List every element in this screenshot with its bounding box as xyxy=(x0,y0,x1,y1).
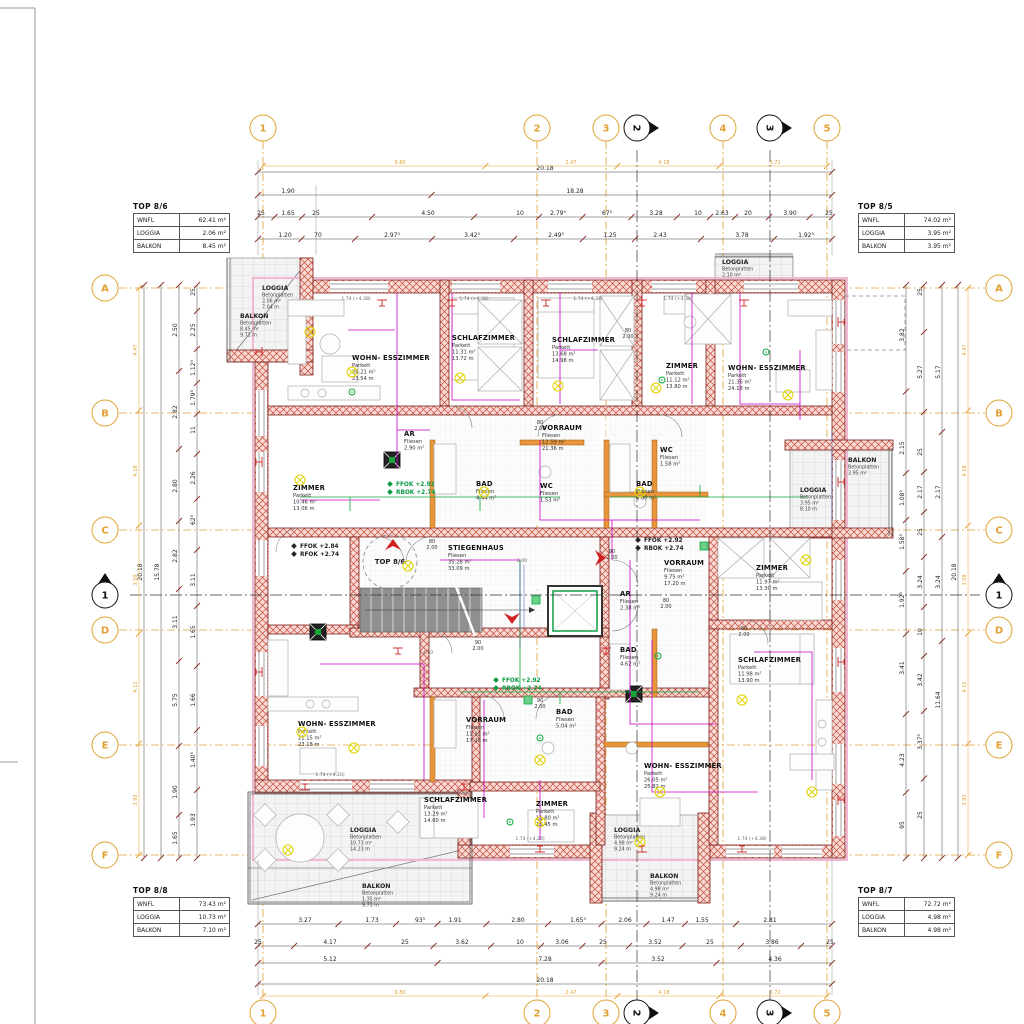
apartment-entry-label: TOP 8/6 xyxy=(375,558,406,566)
dimension-label: 11.64 xyxy=(935,691,942,708)
dimension-label: 25 xyxy=(599,939,607,946)
room-label: WOHN- ESSZIMMER xyxy=(728,364,806,372)
dimension-label: 1.47 xyxy=(661,917,675,924)
dimension-label: 3.58 xyxy=(133,574,139,585)
loggia-label: BALKON xyxy=(848,457,876,464)
axis-bubble-label: B xyxy=(995,409,1003,420)
loggia-sublabel: 9.24 m xyxy=(614,847,631,853)
table-key: WNFL xyxy=(134,214,180,227)
axis-bubble-label: F xyxy=(102,851,109,862)
dimension-label: 20.18 xyxy=(536,977,553,984)
loggia-sublabel: 2.06 m² xyxy=(262,299,281,305)
dimension-label: 4.23 xyxy=(899,753,906,767)
table-key: BALKON xyxy=(859,924,905,937)
furniture-round xyxy=(818,720,826,728)
room-sublabel: 21.36 m xyxy=(542,446,564,452)
loggia-sublabel: Betonplatten xyxy=(350,835,381,841)
dimension-label: 25 xyxy=(401,939,409,946)
dimension-label: 1.58⁵ xyxy=(899,534,906,550)
window xyxy=(256,540,267,576)
dimension-label: 4.11 xyxy=(962,681,968,692)
dimension-label: 2.80 xyxy=(172,479,179,493)
room-sublabel: 11.98 m² xyxy=(738,672,762,678)
dimension-label: 10 xyxy=(516,210,524,217)
window xyxy=(330,281,388,292)
room-sublabel: 14.98 m xyxy=(552,358,574,364)
axis-bubble-label: 1 xyxy=(260,124,267,135)
balkon-bottom-left xyxy=(248,868,472,904)
shaft-vent xyxy=(315,629,321,635)
dimension-label: 25 xyxy=(917,528,924,536)
loggia-sublabel: 4.98 m² xyxy=(650,887,669,893)
room-sublabel: 35.28 m² xyxy=(448,560,472,566)
table-value: 8.45 m² xyxy=(179,240,229,253)
dimension-label: 2.06 xyxy=(618,917,632,924)
room-sublabel: Parkett xyxy=(666,371,684,377)
loggia-sublabel: 8.10 m xyxy=(800,507,817,513)
loggia-sublabel: Betonplatten xyxy=(650,881,681,887)
area-table-bottom-left: TOP 8/8 WNFL73.43 m² LOGGIA10.73 m² BALK… xyxy=(133,886,230,937)
dimension-label: 25 xyxy=(917,811,924,819)
room-sublabel: Fliesen xyxy=(466,725,484,731)
dimension-label: 4.18 xyxy=(133,465,139,476)
dimension-label: 25 xyxy=(917,448,924,456)
level-annotation: FFOK +2.92 xyxy=(396,482,435,488)
dimension-label: 9.80 xyxy=(394,160,405,166)
room-label: SCHLAFZIMMER xyxy=(552,336,616,344)
dimension-label: 70 xyxy=(314,232,322,239)
window xyxy=(726,846,774,857)
furniture-round xyxy=(322,700,330,708)
room-label: SCHLAFZIMMER xyxy=(452,334,516,342)
area-table-title: TOP 8/6 xyxy=(133,202,230,211)
axis-bubble-label: C xyxy=(101,526,108,537)
window xyxy=(833,352,844,392)
room-sublabel: 13.68 m² xyxy=(552,352,576,358)
dimension-label: 1.65⁵ xyxy=(570,917,586,924)
room-sublabel: 1.53 m² xyxy=(540,498,560,504)
dimension-label: 25 xyxy=(917,288,924,296)
door-size-tag: 2.00 xyxy=(660,604,671,610)
room-label: BAD xyxy=(620,646,637,654)
axis-bubble-label: 5 xyxy=(824,1009,831,1020)
furniture xyxy=(788,300,832,316)
dimension-label: 5.12 xyxy=(323,956,337,963)
dimension-label: 1.92⁵ xyxy=(798,232,814,239)
room-label: SCHLAFZIMMER xyxy=(738,656,802,664)
dimension-label: 4.17 xyxy=(323,939,337,946)
furniture-round xyxy=(684,316,696,328)
outlet-symbol xyxy=(657,655,659,657)
dimension-label: 3.42 xyxy=(917,673,924,687)
axis-bubble-label: E xyxy=(996,741,1003,752)
area-table-top-left: TOP 8/6 WNFL62.41 m² LOGGIA2.06 m² BALKO… xyxy=(133,202,230,253)
room-sublabel: 11.80 m² xyxy=(536,816,560,822)
furniture-round xyxy=(542,742,554,754)
room-sublabel: 21.15 m² xyxy=(298,736,322,742)
window xyxy=(452,281,500,292)
room-sublabel: Parkett xyxy=(452,343,470,349)
room-sublabel: Parkett xyxy=(644,771,662,777)
dimension-label: 2.80 xyxy=(511,917,525,924)
axis-bubble-label: D xyxy=(995,626,1003,637)
dimension-label: 1.55 xyxy=(695,917,709,924)
dimension-label: 1.12⁵ xyxy=(190,360,197,376)
loggia-sublabel: Betonplatten xyxy=(262,293,293,299)
window-size-tag: 2.00 xyxy=(517,558,527,564)
sheet-frame xyxy=(0,8,35,1024)
room-sublabel: 4.62 m² xyxy=(620,662,640,668)
room-sublabel: 13.80 m xyxy=(666,384,688,390)
dimension-label: 11 xyxy=(190,426,197,434)
table-value: 62.41 m² xyxy=(179,214,229,227)
room-label: WC xyxy=(660,446,673,454)
furniture xyxy=(300,748,336,774)
table-key: WNFL xyxy=(859,898,905,911)
dimension-label: 2.81 xyxy=(763,917,777,924)
window-size-tag: 4.50 xyxy=(423,650,433,656)
axis-bubble-label: B xyxy=(101,409,109,420)
room-sublabel: 26.05 m² xyxy=(644,778,668,784)
room-sublabel: Fliesen xyxy=(542,433,560,439)
room-label: ZIMMER xyxy=(666,362,699,370)
furniture-round xyxy=(318,389,326,397)
dimension-label: 3.72 xyxy=(769,160,780,166)
dimension-label: 4.18 xyxy=(658,160,669,166)
dimension-label: 1.93 xyxy=(190,813,197,827)
dimension-label: 2.49⁵ xyxy=(548,232,564,239)
dimension-label: 5.27 xyxy=(917,365,924,379)
level-annotation: FFOK +2.92 xyxy=(644,538,683,544)
room-sublabel: 10.46 m² xyxy=(293,500,317,506)
level-marker-icon xyxy=(493,677,499,683)
furniture xyxy=(288,300,344,316)
dimension-label: 4.36 xyxy=(768,956,782,963)
table-key: WNFL xyxy=(859,214,905,227)
dimension-label: 67⁵ xyxy=(602,210,613,217)
furniture xyxy=(268,640,288,696)
outlet-symbol xyxy=(661,379,663,381)
room-sublabel: Parkett xyxy=(536,809,554,815)
level-marker-icon xyxy=(291,543,297,549)
window xyxy=(833,744,844,784)
dimension-label: 3.41 xyxy=(899,661,906,675)
dimension-label: 5.17 xyxy=(935,365,942,379)
axis-bubble-label: 4 xyxy=(720,1009,727,1020)
dimension-label: 1.20 xyxy=(278,232,292,239)
roof-outline-dashed xyxy=(845,296,905,350)
dimension-label: 1.90 xyxy=(172,785,179,799)
axis-bubble-label: C xyxy=(995,526,1002,537)
door-size-tag: 2.00 xyxy=(534,704,545,710)
window xyxy=(256,452,267,492)
loggia-sublabel: 4.98 m² xyxy=(614,841,633,847)
furniture xyxy=(434,700,456,748)
loggia-sublabel: 7.04 m xyxy=(262,305,279,311)
table-value: 7.10 m² xyxy=(179,924,229,937)
room-label: ZIMMER xyxy=(293,484,326,492)
table-value: 73.43 m² xyxy=(179,898,229,911)
dimension-label: 10 xyxy=(694,210,702,217)
furniture-round xyxy=(306,700,314,708)
dimension-label: 3.24 xyxy=(935,575,942,589)
room-sublabel: Fliesen xyxy=(540,491,558,497)
furniture-round xyxy=(539,466,551,478)
section-marker-label: 2 xyxy=(631,125,642,132)
loggia-label: LOGGIA xyxy=(262,285,288,292)
window xyxy=(652,281,696,292)
window xyxy=(256,390,267,436)
level-marker-icon xyxy=(387,481,393,487)
section-marker-label: 2 xyxy=(631,1010,642,1017)
table-value: 4.98 m² xyxy=(904,924,954,937)
window-size-tag: 1.74 (+4.38) xyxy=(663,296,693,302)
dimension-label: 7.28 xyxy=(538,956,552,963)
room-sublabel: Parkett xyxy=(728,373,746,379)
dimension-label: 15.78 xyxy=(154,563,161,580)
axis-bubble-label: 3 xyxy=(603,1009,610,1020)
dimension-label: 3.82 xyxy=(899,328,906,342)
table-value: 10.73 m² xyxy=(179,911,229,924)
dimension-label: 1.79⁵ xyxy=(190,390,197,406)
dimension-label: 3.37⁵ xyxy=(917,734,924,750)
dimension-label: 1.65 xyxy=(172,831,179,845)
loggia-sublabel: Betonplatten xyxy=(848,465,879,471)
furniture xyxy=(776,370,810,392)
dimension-label: 3.58 xyxy=(962,574,968,585)
axis-bubble-label: 3 xyxy=(603,124,610,135)
room-sublabel: 11.31 m² xyxy=(452,350,476,356)
level-annotation: FFOK +2.92 xyxy=(502,678,541,684)
room-sublabel: Parkett xyxy=(756,573,774,579)
table-key: BALKON xyxy=(134,924,180,937)
room-sublabel: Parkett xyxy=(738,665,756,671)
table-value: 3.95 m² xyxy=(904,240,954,253)
radiator-valve-symbol xyxy=(739,300,749,306)
room-label: AR xyxy=(404,430,415,438)
dimension-label: 1.90 xyxy=(281,188,295,195)
window xyxy=(256,652,267,696)
table-key: LOGGIA xyxy=(859,911,905,924)
loggia-sublabel: 8.45 m² xyxy=(240,327,259,333)
outlet-symbol xyxy=(539,737,541,739)
room-sublabel: 23.18 m xyxy=(298,742,320,748)
table-value: 4.98 m² xyxy=(904,911,954,924)
room-sublabel: Fliesen xyxy=(404,439,422,445)
area-table-title: TOP 8/5 xyxy=(858,202,955,211)
dimension-label: 1.92⁵ xyxy=(899,592,906,608)
room-sublabel: 2.90 m² xyxy=(404,446,424,452)
furniture xyxy=(434,444,456,494)
dimension-label: 3.90 xyxy=(783,210,797,217)
table-key: BALKON xyxy=(859,240,905,253)
loggia-sublabel: 3.95 m² xyxy=(848,471,867,477)
window-size-tag: 1.74 (+4.20) xyxy=(315,772,345,778)
room-sublabel: 11.12 m² xyxy=(666,378,690,384)
loggia-label: BALKON xyxy=(362,883,390,890)
area-table-bottom-right: TOP 8/7 WNFL72.72 m² LOGGIA4.98 m² BALKO… xyxy=(858,886,955,937)
loggia-sublabel: Betonplatten xyxy=(800,495,831,501)
room-sublabel: Fliesen xyxy=(556,717,574,723)
room-label: WOHN- ESSZIMMER xyxy=(644,762,722,770)
room-sublabel: Fliesen xyxy=(620,655,638,661)
dimension-label: 3.86 xyxy=(765,939,779,946)
dimension-label: 2.25 xyxy=(190,323,197,337)
dimension-label: 2.15 xyxy=(899,441,906,455)
level-annotation: RFOK +2.74 xyxy=(300,552,339,558)
dimension-label: 3.42⁵ xyxy=(464,232,480,239)
room-sublabel: 23.54 m xyxy=(352,376,374,382)
dimension-label: 1.66 xyxy=(190,693,197,707)
table-value: 3.95 m² xyxy=(904,227,954,240)
dimension-label: 2.43 xyxy=(653,232,667,239)
furniture xyxy=(770,582,822,620)
dimension-label: 2.82 xyxy=(172,549,179,563)
area-table-title: TOP 8/7 xyxy=(858,886,955,895)
room-sublabel: Fliesen xyxy=(620,599,638,605)
table-key: LOGGIA xyxy=(859,227,905,240)
furniture-round xyxy=(276,814,324,862)
furniture xyxy=(610,444,630,492)
dimension-label: 25 xyxy=(257,210,265,217)
dimension-label: 62⁵ xyxy=(190,514,197,525)
room-sublabel: 14.60 m xyxy=(424,818,446,824)
dimension-label: 25 xyxy=(826,939,834,946)
loggia-label: BALKON xyxy=(240,313,268,320)
axis-bubble-label: E xyxy=(102,741,109,752)
dimension-label: 10 xyxy=(917,628,924,636)
floor-plan-canvas: 20.181.9018.28251.65254.50102.79⁵67⁵3.28… xyxy=(0,0,1024,1024)
dimension-label: 3.78 xyxy=(735,232,749,239)
table-value: 2.06 m² xyxy=(179,227,229,240)
loggia-label: LOGGIA xyxy=(350,827,376,834)
axis-bubble-label: F xyxy=(996,851,1003,862)
furniture xyxy=(640,798,680,826)
window xyxy=(833,648,844,692)
room-label: VORRAUM xyxy=(664,559,704,567)
room-label: WC xyxy=(540,482,553,490)
level-annotation: RBOK +2.74 xyxy=(396,490,435,496)
dimension-label: 3.52 xyxy=(648,939,662,946)
dimension-label: 3.11 xyxy=(190,573,197,587)
room-sublabel: 33.09 m xyxy=(448,566,470,572)
axis-bubble-label: D xyxy=(101,626,109,637)
dimension-label: 3.06 xyxy=(555,939,569,946)
dimension-label: 10 xyxy=(516,939,524,946)
window xyxy=(833,560,844,600)
room-sublabel: 24.18 m xyxy=(728,386,750,392)
shaft-vent xyxy=(389,457,395,463)
window-size-tag: 1.74 (+4.38) xyxy=(573,296,603,302)
dimension-label: 3.27 xyxy=(298,917,312,924)
room-label: SCHLAFZIMMER xyxy=(424,796,488,804)
furniture-round xyxy=(301,389,309,397)
outlet-symbol xyxy=(765,351,767,353)
dimension-label: 1.91 xyxy=(448,917,462,924)
room-label: ZIMMER xyxy=(536,800,569,808)
room-sublabel: 13.29 m² xyxy=(424,812,448,818)
loggia-sublabel: 3.95 m² xyxy=(800,501,819,507)
axis-bubble-label: 1 xyxy=(260,1009,267,1020)
dimension-label: 3.11 xyxy=(172,615,179,629)
window xyxy=(782,846,822,857)
section-marker-label: 1 xyxy=(102,591,109,602)
dimension-label: 18.28 xyxy=(566,188,583,195)
dimension-label: 2.26 xyxy=(190,471,197,485)
window xyxy=(833,460,844,520)
dimension-label: 4.47 xyxy=(962,344,968,355)
window xyxy=(370,781,414,792)
room-sublabel: 21.36 m² xyxy=(728,380,752,386)
window-size-tag: 1.74 (+4.20) xyxy=(515,836,545,842)
outlet-symbol xyxy=(509,821,511,823)
loggia-sublabel: Betonplatten xyxy=(362,891,393,897)
loggia-label: BALKON xyxy=(650,873,678,880)
loggia-sublabel: 10.73 m² xyxy=(350,841,372,847)
dimension-label: 93⁵ xyxy=(415,917,426,924)
loggia-label: LOGGIA xyxy=(800,487,826,494)
room-label: WOHN- ESSZIMMER xyxy=(352,354,430,362)
dimension-label: 2.97⁵ xyxy=(384,232,400,239)
door-size-tag: 2.00 xyxy=(606,555,617,561)
axis-bubble-label: 2 xyxy=(534,1009,541,1020)
loggia-label: LOGGIA xyxy=(614,827,640,834)
dimension-label: 3.93 xyxy=(962,794,968,805)
room-sublabel: Fliesen xyxy=(448,553,466,559)
level-annotation: FFOK +2.84 xyxy=(300,544,339,550)
dimension-label: 4.18 xyxy=(658,990,669,996)
loggia-sublabel: 14.23 m xyxy=(350,847,370,853)
door-size-tag: 2.00 xyxy=(426,545,437,551)
level-annotation: RBOK +2.74 xyxy=(502,686,541,692)
room-sublabel: 13.72 m xyxy=(452,356,474,362)
room-sublabel: Parkett xyxy=(424,805,442,811)
axis-bubble-label: 4 xyxy=(720,124,727,135)
dimension-label: 4.11 xyxy=(133,681,139,692)
window-size-tag: 1.74 (+4.38) xyxy=(341,296,371,302)
window-size-tag: 1.74 (+4.38) xyxy=(737,836,767,842)
dimension-label: 1.73 xyxy=(365,917,379,924)
dimension-label: 3.24 xyxy=(917,575,924,589)
room-sublabel: Fliesen xyxy=(660,455,678,461)
loggia-label: LOGGIA xyxy=(722,259,748,266)
loggia-sublabel: 9.71 m xyxy=(240,333,257,339)
room-sublabel: 11.97 m² xyxy=(756,580,780,586)
section-marker-label: 3 xyxy=(764,125,775,132)
room-sublabel: Parkett xyxy=(552,345,570,351)
dimension-label: 3.93 xyxy=(133,794,139,805)
axis-bubble-label: A xyxy=(101,284,109,295)
loggia-sublabel: 9.71 m xyxy=(362,903,379,909)
room-sublabel: 17.20 m xyxy=(466,738,488,744)
area-table-title: TOP 8/8 xyxy=(133,886,230,895)
room-label: BAD xyxy=(556,708,573,716)
door-size-tag: 2.00 xyxy=(472,646,483,652)
dimension-label: 2.47 xyxy=(565,160,576,166)
room-sublabel: Fliesen xyxy=(664,568,682,574)
dimension-label: 1.40⁵ xyxy=(190,752,197,768)
room-label: WOHN- ESSZIMMER xyxy=(298,720,376,728)
dimension-label: 2.79⁵ xyxy=(550,210,566,217)
dimension-label: 2.63 xyxy=(715,210,729,217)
window xyxy=(744,281,798,292)
furniture-round xyxy=(320,334,340,354)
room-label: STIEGENHAUS xyxy=(448,544,504,552)
drawing-sheet: 20.181.9018.28251.65254.50102.79⁵67⁵3.28… xyxy=(0,0,1024,1024)
dimension-label: 3.62 xyxy=(455,939,469,946)
dimension-label: 2.47 xyxy=(565,990,576,996)
dimension-label: 95 xyxy=(899,821,906,829)
